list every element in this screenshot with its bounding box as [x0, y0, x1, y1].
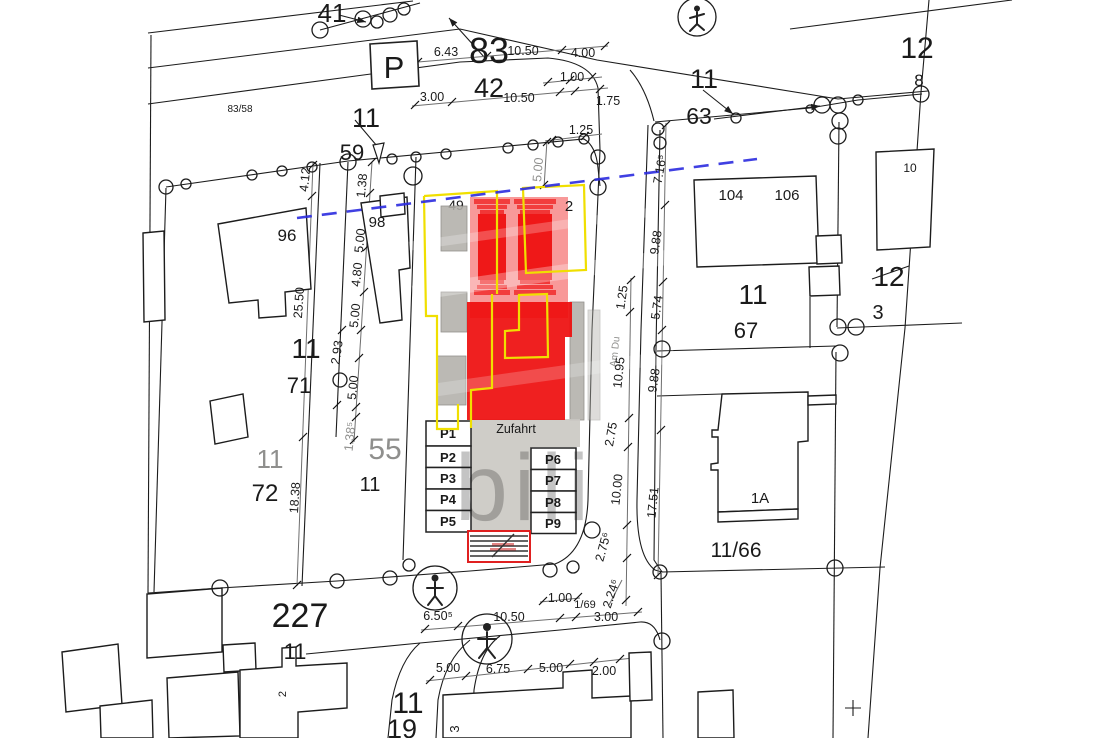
dim-5-00-a: 5.00 — [352, 228, 368, 254]
dim-10-95: 10.95 — [610, 356, 627, 389]
dim-7-16: 7.16⁵ — [651, 154, 670, 185]
dim-2-00: 2.00 — [592, 664, 616, 678]
parcel-label-42: 42 — [474, 73, 504, 103]
parcel-label-1-69: 1/69 — [574, 599, 595, 611]
parcel-label-55: 55 — [368, 433, 401, 466]
parcel-label-11-67: 11 — [738, 279, 767, 310]
dim-1-38-n: 1.38 — [354, 173, 370, 199]
parcel-label-71: 71 — [287, 373, 311, 398]
dim-1-75: 1.75 — [596, 94, 620, 108]
parcel-label-3-e: 3 — [872, 302, 883, 324]
site-plan-svg: 49 P1 P2 P3 P4 P5 P6 P7 P8 P9 Zufahrt — [0, 0, 1117, 738]
dim-2-75-n: 2.75 — [602, 421, 620, 447]
dim-6-75: 6.75 — [486, 662, 510, 676]
parcel-label-96: 96 — [278, 226, 297, 245]
building-104-annex — [816, 235, 842, 264]
stall-label-p3: P3 — [440, 471, 456, 486]
site-plan-page: 49 P1 P2 P3 P4 P5 P6 P7 P8 P9 Zufahrt — [0, 0, 1117, 738]
building-1a-terrace — [718, 509, 798, 522]
house-label-106: 106 — [774, 187, 799, 204]
building-sw-edge1 — [62, 644, 122, 712]
dim-1-25-top: 1.25 — [569, 123, 593, 137]
parking-sign: P — [370, 41, 419, 89]
dim-10-50-s: 10.50 — [493, 610, 524, 624]
dim-3-00-nw: 3.00 — [420, 90, 444, 104]
parcel-label-8: 8 — [914, 71, 923, 90]
building-1a-annex — [808, 395, 836, 405]
dim-2-93: 2.93 — [328, 339, 345, 365]
house-label-104: 104 — [718, 187, 743, 204]
dim-10-50-mid: 10.50 — [503, 91, 534, 105]
parcel-label-59: 59 — [340, 140, 364, 165]
parcel-label-83: 83 — [469, 30, 509, 71]
parcel-label-10: 10 — [903, 161, 917, 175]
parcel-label-63: 63 — [686, 103, 712, 129]
house-label-1a: 1A — [751, 490, 769, 507]
dim-2-75-s: 2.75⁶ — [593, 531, 614, 563]
dim-10-50-top: 10.50 — [507, 44, 538, 58]
parcel-label-11-55: 11 — [360, 474, 381, 496]
dim-3-00-s: 3.00 — [594, 610, 618, 624]
parcel-label-227: 227 — [272, 597, 329, 635]
dim-1-00-s: 1.00 — [548, 591, 572, 605]
parcel-label-98: 98 — [369, 214, 386, 231]
dim-2-24: 2.24⁶ — [600, 578, 622, 610]
parcel-label-11-66: 11/66 — [711, 539, 762, 562]
building-bottom-r2 — [698, 690, 734, 738]
parcel-label-11-top: 11 — [352, 103, 380, 133]
parcel-label-12-ne: 12 — [900, 32, 933, 65]
parcel-label-3-s: 3 — [447, 725, 462, 732]
dim-6-43: 6.43 — [434, 45, 458, 59]
parcel-label-11-e: 11 — [690, 64, 718, 94]
dim-4-80: 4.80 — [349, 262, 365, 288]
dim-5-00-e: 5.00 — [539, 661, 563, 675]
dim-5-00-c: 5.00 — [345, 375, 361, 401]
pedestrian-icon-sw — [413, 566, 457, 610]
building-left-edge — [143, 231, 165, 322]
parking-sign-label: P — [384, 50, 405, 85]
watermark-text: bili — [455, 435, 595, 541]
stall-label-p2: P2 — [440, 450, 456, 465]
dim-10-00: 10.00 — [608, 473, 625, 506]
pedestrian-icon-ne — [678, 0, 716, 36]
dim-1-00: 1.00 — [560, 70, 584, 84]
parcel-label-41: 41 — [318, 0, 347, 28]
parcel-label-11-227: 11 — [284, 639, 307, 664]
dim-5-00-d: 5.00 — [436, 661, 460, 675]
dim-4-12: 4.12 — [297, 167, 313, 193]
building-sw1-annex — [223, 643, 256, 672]
dim-1-25-e: 1.25 — [613, 284, 630, 310]
dim-9-88-s: 9.88 — [645, 367, 662, 393]
building-sw2 — [167, 672, 240, 738]
building-sw-edge2 — [100, 700, 153, 738]
building-bottom-main — [443, 670, 631, 738]
parcel-label-11-gray: 11 — [257, 444, 284, 474]
parcel-label-67: 67 — [734, 318, 758, 343]
dim-6-50: 6.50⁵ — [423, 609, 453, 623]
dim-5-00-gray: 5.00 — [530, 157, 546, 183]
dim-5-00-b: 5.00 — [347, 303, 363, 329]
building-104-annex2 — [809, 266, 840, 296]
parcel-label-2-top: 2 — [565, 198, 573, 215]
parcel-label-72: 72 — [252, 480, 279, 507]
dim-18-38: 18.38 — [287, 482, 303, 514]
parcel-label-2-s: 2 — [277, 691, 289, 697]
building-104-106 — [694, 176, 819, 267]
building-sw1 — [147, 588, 222, 658]
parcel-label-11-w: 11 — [291, 333, 320, 364]
dim-1-38-s: 1.38⁵ — [342, 421, 359, 452]
dim-25-50: 25.50 — [291, 287, 307, 319]
dim-4-00: 4.00 — [571, 46, 595, 60]
parcel-label-83-58: 83/58 — [227, 104, 252, 115]
parcel-label-19: 19 — [387, 714, 417, 738]
building-72 — [210, 394, 248, 444]
parcel-label-12-m: 12 — [873, 261, 904, 292]
building-bottom-r1 — [629, 652, 652, 701]
zufahrt-label: Zufahrt — [496, 422, 536, 436]
stall-label-p5: P5 — [440, 514, 456, 529]
